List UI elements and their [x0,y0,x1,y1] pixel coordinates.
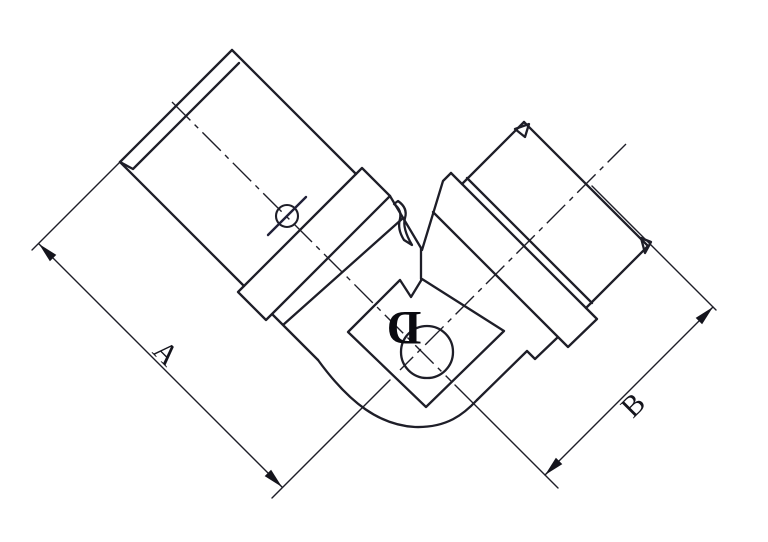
centerline-right-axis [400,144,626,370]
bore-diameter-label: D [387,301,422,354]
bore-dimension: D [387,301,453,378]
elbow-outer-corner-arc [318,360,477,427]
inner-body-diamond [348,279,504,407]
elbow-fitting-drawing: D A B [0,0,768,542]
dim-a-extension-bottom [272,380,390,498]
technical-drawing-page: D A B [0,0,768,542]
sleeve-collar [238,168,402,360]
dim-a-label: A [146,334,185,373]
dimension-b: B [455,186,716,488]
male-thread-end [422,122,651,400]
dim-b-extension-bottom [455,385,558,488]
dimension-a: A [32,162,390,498]
dim-b-extension-top [592,186,716,310]
dim-a-extension-top [32,162,120,250]
dim-b-label: B [615,387,652,424]
joint-notch-right-edge [422,173,451,250]
thread-collar [433,173,597,400]
press-sleeve-end [120,50,421,360]
